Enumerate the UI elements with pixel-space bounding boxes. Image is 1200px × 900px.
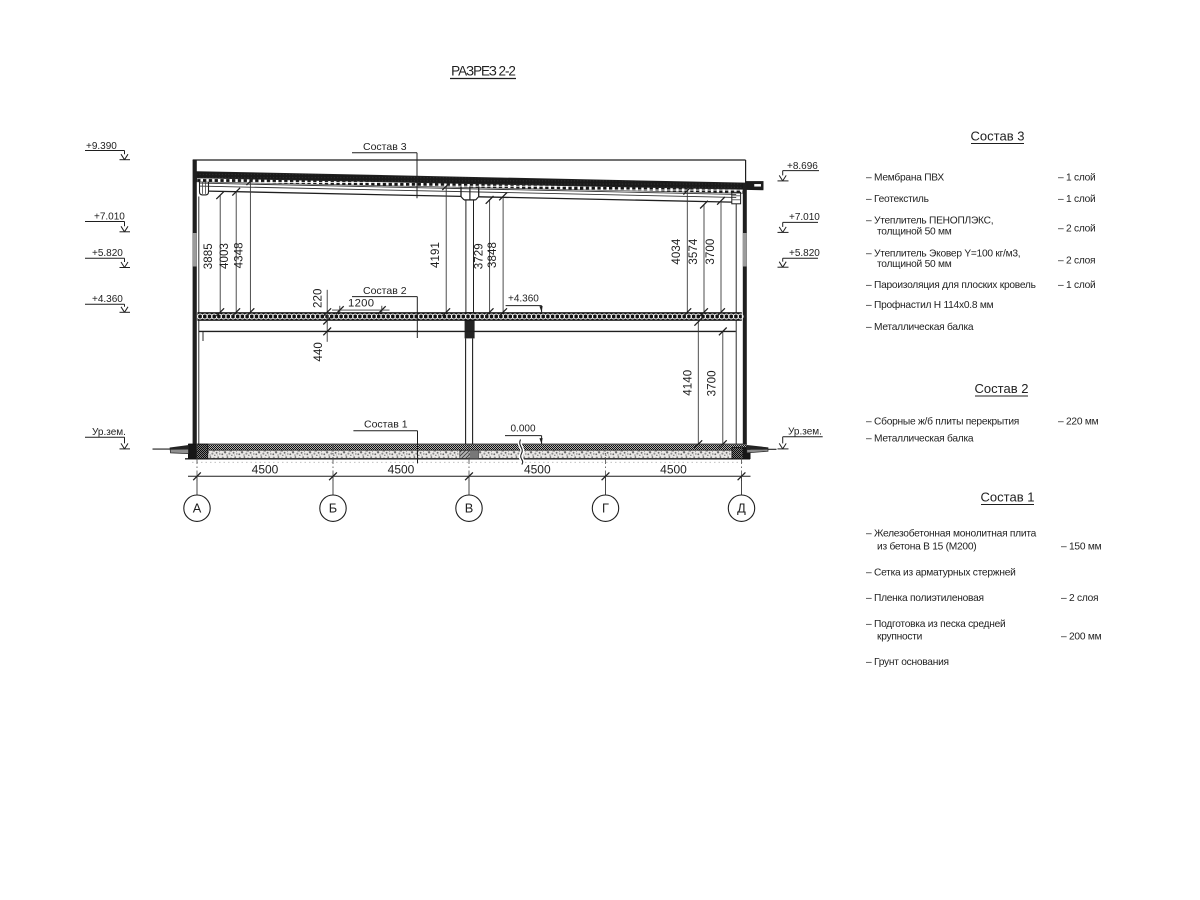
svg-text:+5.820: +5.820: [92, 248, 123, 259]
svg-text:4500: 4500: [388, 462, 415, 476]
svg-text:– 1 слой: – 1 слой: [1058, 194, 1096, 205]
svg-text:– 150 мм: – 150 мм: [1061, 542, 1102, 553]
svg-text:+5.820: +5.820: [789, 248, 820, 259]
svg-text:+4.360: +4.360: [508, 294, 539, 305]
svg-text:0.000: 0.000: [511, 424, 536, 435]
svg-text:РАЗРЕЗ 2-2: РАЗРЕЗ 2-2: [451, 64, 515, 79]
svg-text:440: 440: [313, 342, 325, 362]
svg-text:Ур.зем.: Ур.зем.: [92, 427, 126, 438]
svg-text:– Сборные ж/б плиты перекрыти: – Сборные ж/б плиты перекрытия: [866, 416, 1019, 428]
svg-text:1200: 1200: [348, 298, 374, 310]
svg-text:Состав 2: Состав 2: [975, 381, 1029, 396]
svg-text:– Металлическая балка: – Металлическая балка: [866, 432, 974, 444]
svg-text:4191: 4191: [430, 242, 442, 268]
svg-text:+4.360: +4.360: [92, 294, 123, 305]
svg-text:Состав 1: Состав 1: [981, 490, 1035, 505]
svg-text:3700: 3700: [705, 239, 717, 265]
svg-text:Г: Г: [602, 501, 609, 516]
svg-text:4348: 4348: [234, 242, 246, 268]
svg-text:4003: 4003: [219, 243, 231, 269]
svg-text:+7.010: +7.010: [789, 212, 820, 223]
svg-text:толщиной 50 мм: толщиной 50 мм: [877, 259, 952, 270]
svg-text:– Утеплитель ПЕНОПЛЭКС,: – Утеплитель ПЕНОПЛЭКС,: [866, 216, 993, 227]
svg-text:Д: Д: [737, 501, 746, 516]
svg-text:4034: 4034: [671, 238, 683, 264]
svg-text:3729: 3729: [473, 243, 485, 269]
svg-text:– 2 слоя: – 2 слоя: [1058, 256, 1095, 267]
svg-text:– 2 слой: – 2 слой: [1058, 224, 1096, 235]
svg-text:Состав 2: Состав 2: [363, 285, 407, 297]
svg-text:4500: 4500: [524, 462, 551, 476]
svg-text:4500: 4500: [660, 462, 687, 476]
svg-text:– Сетка из арматурных стержне: – Сетка из арматурных стержней: [866, 568, 1016, 579]
svg-text:– Железобетонная монолитная: – Железобетонная монолитная плита: [866, 528, 1037, 540]
svg-text:– 1 слой: – 1 слой: [1058, 172, 1096, 183]
svg-text:– Подготовка из песка средней: – Подготовка из песка средней: [866, 619, 1005, 630]
svg-text:– 1 слой: – 1 слой: [1058, 280, 1096, 291]
svg-text:+7.010: +7.010: [94, 211, 125, 222]
svg-text:– Пленка полиэтиленовая: – Пленка полиэтиленовая: [866, 593, 984, 604]
svg-text:– Пароизоляция для плоских кр: – Пароизоляция для плоских кровель: [866, 280, 1036, 291]
svg-text:220: 220: [312, 289, 324, 309]
svg-text:– Геотекстиль: – Геотекстиль: [866, 194, 929, 205]
svg-text:Состав 3: Состав 3: [363, 141, 407, 153]
svg-text:3700: 3700: [706, 370, 718, 396]
svg-text:– 2 слоя: – 2 слоя: [1061, 593, 1098, 604]
svg-text:Состав 1: Состав 1: [364, 419, 408, 431]
svg-text:– Мембрана ПВХ: – Мембрана ПВХ: [866, 171, 944, 183]
svg-text:3574: 3574: [688, 238, 700, 264]
svg-text:3885: 3885: [203, 243, 215, 269]
svg-text:– Грунт основания: – Грунт основания: [866, 657, 949, 668]
svg-text:из бетона В 15 (М200): из бетона В 15 (М200): [877, 541, 976, 553]
svg-text:4500: 4500: [252, 462, 279, 476]
svg-text:А: А: [193, 501, 202, 516]
svg-text:Состав 3: Состав 3: [971, 129, 1025, 144]
svg-text:В: В: [465, 501, 474, 516]
svg-text:– Металлическая балка: – Металлическая балка: [866, 321, 974, 333]
svg-text:Б: Б: [329, 501, 337, 516]
svg-text:– 200 мм: – 200 мм: [1061, 632, 1102, 643]
svg-text:3848: 3848: [487, 242, 499, 268]
svg-text:крупности: крупности: [877, 632, 922, 643]
svg-text:толщиной 50 мм: толщиной 50 мм: [877, 227, 952, 238]
svg-text:4140: 4140: [682, 370, 694, 396]
svg-text:Ур.зем.: Ур.зем.: [788, 427, 822, 438]
svg-text:– 220 мм: – 220 мм: [1058, 417, 1099, 428]
svg-text:– Профнастил Н 114х0.8 мм: – Профнастил Н 114х0.8 мм: [866, 299, 994, 311]
